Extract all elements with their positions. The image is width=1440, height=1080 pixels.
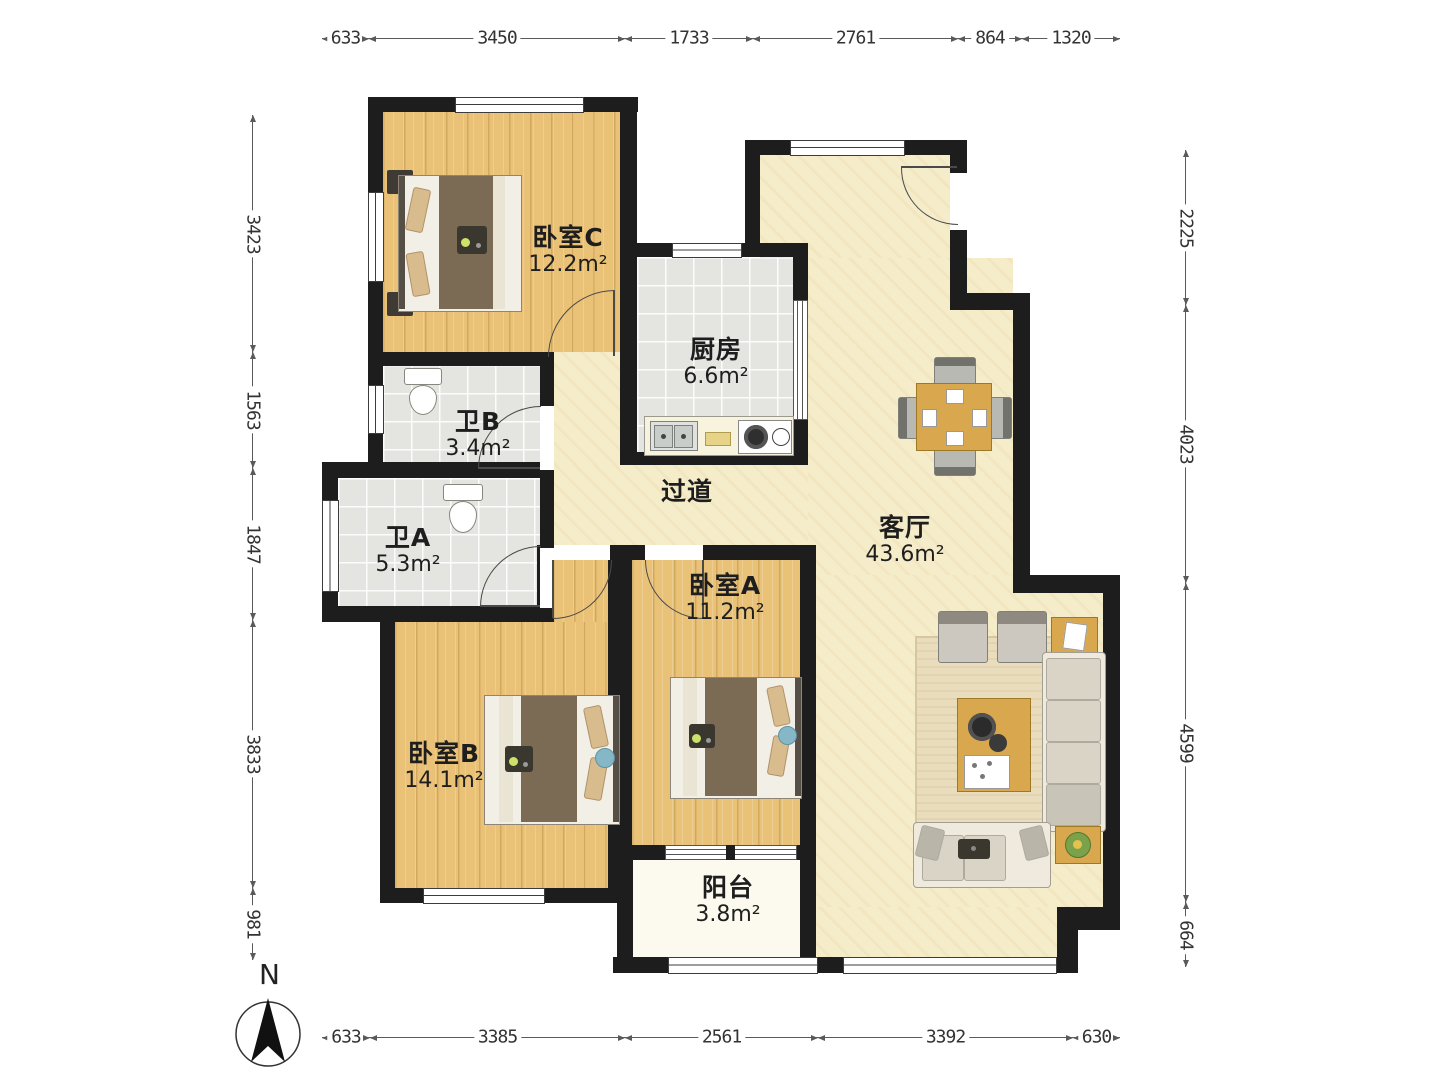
pillow — [766, 685, 791, 728]
kitchen-sink — [650, 421, 698, 451]
room-label-kitchen: 厨房 6.6m² — [683, 336, 748, 390]
chair-back — [935, 358, 975, 366]
wall — [1013, 293, 1030, 593]
dimension-label: 4599 — [1176, 719, 1197, 766]
wall — [322, 606, 554, 622]
dimension-segment: 3423 — [252, 115, 253, 352]
cooktop — [738, 420, 792, 454]
pillow — [405, 251, 430, 297]
dimension-label: 2225 — [1176, 204, 1197, 251]
room-name: 卧室B — [404, 740, 483, 768]
dimension-segment: 4023 — [1185, 305, 1186, 583]
window — [668, 957, 818, 974]
sofa-cushion — [1046, 784, 1101, 826]
magazine — [1062, 622, 1088, 652]
window — [790, 140, 905, 156]
tray-item — [971, 846, 976, 851]
coffee-table — [957, 698, 1031, 792]
dimension-label: 633 — [327, 1027, 365, 1048]
room-area: 6.6m² — [683, 364, 748, 390]
place-setting — [946, 431, 964, 446]
window — [672, 243, 742, 258]
room-area: 12.2m² — [528, 252, 607, 278]
dimension-label: 633 — [327, 28, 365, 49]
window — [843, 957, 1057, 974]
teacup — [989, 734, 1007, 752]
cooktop-dial — [772, 428, 790, 446]
sliding-door-mullion — [726, 845, 735, 860]
place-setting — [922, 409, 937, 427]
dimension-label: 664 — [1176, 916, 1197, 954]
dimension-segment: 4599 — [1185, 583, 1186, 902]
room-label-living: 客厅 43.6m² — [865, 514, 944, 568]
dimension-label: 3450 — [473, 28, 520, 49]
dimension-segment: 3450 — [369, 38, 625, 39]
dimension-label: 3833 — [243, 730, 264, 777]
wall — [620, 97, 637, 465]
burner — [744, 425, 768, 449]
armchair — [938, 611, 988, 663]
dimension-segment: 3833 — [252, 620, 253, 888]
tray-item — [509, 757, 518, 766]
chair-back — [1003, 398, 1011, 438]
room-label-balcony: 阳台 3.8m² — [695, 874, 760, 928]
north-arrow — [230, 992, 306, 1068]
dimension-segment: 633 — [322, 1037, 370, 1038]
drain — [681, 434, 686, 439]
dimension-label: 630 — [1078, 1027, 1116, 1048]
north-label: N — [259, 958, 280, 991]
side-table — [1055, 826, 1101, 864]
window — [455, 97, 584, 113]
room-name: 卫B — [445, 408, 510, 436]
wall — [380, 606, 395, 903]
dimension-segment: 633 — [322, 38, 369, 39]
corner-sofa — [1042, 652, 1106, 832]
cup — [980, 774, 985, 779]
room-area: 5.3m² — [375, 552, 440, 578]
side-table — [1051, 617, 1098, 655]
room-label-bedroom-a: 卧室A 11.2m² — [685, 572, 764, 626]
wall — [610, 545, 645, 560]
sofa-cushion — [1046, 658, 1101, 700]
dimension-segment: 1563 — [252, 352, 253, 468]
round-cushion — [595, 748, 615, 768]
room-label-bath-b: 卫B 3.4m² — [445, 408, 510, 462]
sheet-fold — [493, 176, 505, 309]
room-name: 厨房 — [683, 336, 748, 364]
chair-back — [998, 612, 1046, 624]
plant-center — [1073, 840, 1082, 849]
drain — [661, 434, 666, 439]
bed-tray — [505, 746, 533, 772]
wall — [703, 545, 816, 560]
room-area: 3.8m² — [695, 902, 760, 928]
headboard — [399, 176, 405, 309]
cup — [972, 763, 977, 768]
tray-item — [523, 762, 528, 767]
dimension-label: 3392 — [922, 1027, 969, 1048]
armchair — [997, 611, 1047, 663]
sofa-cushion — [1046, 742, 1101, 784]
pillow — [583, 705, 609, 750]
bed-bedroom-b — [484, 695, 620, 825]
room-area: 14.1m² — [404, 768, 483, 794]
sink-basin — [674, 425, 693, 448]
pillow — [405, 187, 432, 234]
dimension-segment: 630 — [1073, 1037, 1120, 1038]
potted-plant — [1065, 832, 1091, 858]
room-name: 卧室A — [685, 572, 764, 600]
dimension-segment: 664 — [1185, 902, 1186, 967]
dimension-segment: 1733 — [625, 38, 753, 39]
wall — [368, 352, 554, 366]
room-name: 客厅 — [865, 514, 944, 542]
counter-accessory — [705, 432, 731, 446]
dimension-segment: 2561 — [625, 1037, 818, 1038]
dimension-label: 1847 — [243, 520, 264, 567]
dimension-label: 864 — [971, 28, 1009, 49]
window — [322, 500, 339, 592]
room-name: 卫A — [375, 524, 440, 552]
room-area: 3.4m² — [445, 436, 510, 462]
dimension-segment: 2225 — [1185, 150, 1186, 305]
room-label-bath-a: 卫A 5.3m² — [375, 524, 440, 578]
dining-table — [916, 383, 992, 451]
dimension-label: 1320 — [1047, 28, 1094, 49]
dimension-label: 981 — [243, 905, 264, 943]
wall — [745, 140, 760, 250]
bed-bedroom-c — [398, 175, 522, 312]
wall — [800, 545, 816, 973]
dimension-segment: 864 — [958, 38, 1022, 39]
toilet-bath-b — [404, 368, 442, 385]
room-area: 43.6m² — [865, 542, 944, 568]
chair-back — [899, 398, 907, 438]
room-name: 卧室C — [528, 224, 607, 252]
door-opening-bath-b — [540, 406, 554, 470]
tray-item — [476, 243, 481, 248]
room-label-corridor: 过道 — [661, 478, 713, 506]
floor-plan: 卧室C 12.2m² 厨房 6.6m² 卫B 3.4m² 卫A 5.3m² 过道… — [0, 0, 1440, 1080]
bed-tray — [457, 226, 487, 254]
floor-corridor-vertical — [554, 352, 620, 465]
chair-back — [939, 612, 987, 624]
room-label-bedroom-b: 卧室B 14.1m² — [404, 740, 483, 794]
room-label-bedroom-c: 卧室C 12.2m² — [528, 224, 607, 278]
window — [368, 192, 384, 282]
window — [368, 385, 384, 434]
sofa-tray — [958, 839, 990, 859]
throw-pillow — [1018, 825, 1049, 862]
tray-item — [692, 734, 701, 743]
bed-bedroom-a — [670, 677, 802, 799]
dimension-segment: 2761 — [753, 38, 958, 39]
toilet-bath-a — [443, 484, 483, 501]
loveseat-sofa — [913, 822, 1051, 888]
serving-tray — [964, 755, 1010, 789]
dimension-segment: 3385 — [370, 1037, 625, 1038]
dimension-segment: 3392 — [818, 1037, 1073, 1038]
sofa-cushion — [1046, 700, 1101, 742]
dimension-label: 4023 — [1176, 420, 1197, 467]
round-cushion — [778, 726, 797, 745]
kitchen-counter — [644, 416, 794, 456]
dimension-label: 3385 — [474, 1027, 521, 1048]
kitchen-sliding-door — [793, 300, 808, 420]
room-area: 11.2m² — [685, 600, 764, 626]
dimension-label: 1563 — [243, 386, 264, 433]
sink-basin — [654, 425, 673, 448]
chair-back — [935, 467, 975, 475]
window — [423, 888, 545, 904]
tray-item — [706, 738, 711, 743]
tray-item — [461, 238, 470, 247]
dimension-segment: 981 — [252, 888, 253, 960]
room-name: 阳台 — [695, 874, 760, 902]
dimension-segment: 1320 — [1022, 38, 1120, 39]
room-name: 过道 — [661, 478, 713, 506]
north-arrow-icon — [230, 992, 306, 1068]
dimension-segment: 1847 — [252, 468, 253, 620]
place-setting — [972, 409, 987, 427]
bed-tray — [689, 724, 715, 748]
place-setting — [946, 389, 964, 404]
cup — [987, 761, 992, 766]
dimension-label: 1733 — [665, 28, 712, 49]
dimension-label: 3423 — [243, 210, 264, 257]
dimension-label: 2761 — [832, 28, 879, 49]
dimension-label: 2561 — [698, 1027, 745, 1048]
floor-living-bottom — [808, 907, 1057, 957]
